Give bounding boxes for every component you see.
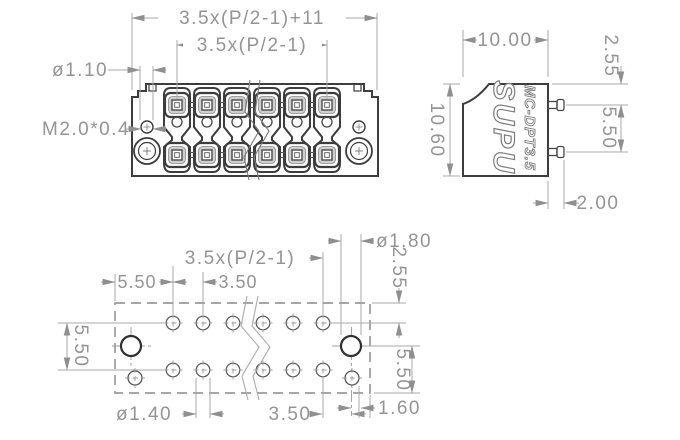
terminal <box>255 93 279 117</box>
break-line <box>241 296 259 400</box>
dim-pitch-bottom: 3.5x(P/2-1) <box>185 248 295 269</box>
terminal <box>285 143 309 167</box>
pin-hole-left <box>141 121 153 133</box>
break-line <box>252 296 270 400</box>
drawing-sheet: 3.5x(P/2-1)+11 3.5x(P/2-1) ø1.10 M2.0*0.… <box>0 0 680 440</box>
terminal <box>315 143 339 167</box>
corner-hole-left <box>125 368 145 388</box>
terminal <box>195 143 219 167</box>
pin-hole <box>194 361 213 380</box>
mount-hole-left <box>121 336 141 356</box>
dim-pin-row-pitch: 5.50 <box>598 107 619 150</box>
terminal <box>165 143 189 167</box>
dim-depth: 10.00 <box>477 30 532 51</box>
dim-overall-width: 3.5x(P/2-1)+11 <box>179 8 325 29</box>
dim-pin-top-offset: 2.55 <box>600 35 621 78</box>
brand-logo-text: SUPU <box>487 80 520 175</box>
dim-hole-pitch: 3.50 <box>218 272 257 292</box>
pin-lower-tip <box>557 147 564 158</box>
pin-hole <box>194 314 213 333</box>
corner-hole-right <box>342 368 362 388</box>
pin-hole <box>314 314 333 333</box>
pin-hole <box>314 361 333 380</box>
dim-mount-to-hole: 3.50 <box>269 404 312 425</box>
model-number-text: MC-DPT3.5 <box>521 85 537 171</box>
pin-hole <box>164 314 183 333</box>
pin-hole <box>284 314 303 333</box>
pin-hole-right <box>353 121 365 133</box>
side-view: SUPU MC-DPT3.5 <box>463 80 564 176</box>
terminal <box>285 93 309 117</box>
dim-row-pitch-left: 5.50 <box>70 325 91 368</box>
dim-pin-length: 2.00 <box>577 193 620 214</box>
mount-hole-left <box>134 138 160 164</box>
dim-height: 10.60 <box>426 102 447 157</box>
dim-pitch-front: 3.5x(P/2-1) <box>197 35 307 56</box>
dim-pin-hole-dia: ø1.10 <box>52 60 108 81</box>
pin-lower <box>548 149 557 156</box>
front-view <box>132 80 378 180</box>
connector-technical-drawing: 3.5x(P/2-1)+11 3.5x(P/2-1) ø1.10 M2.0*0.… <box>0 0 680 440</box>
dim-edge-to-hole: 5.50 <box>117 272 156 292</box>
bottom-view <box>112 296 370 416</box>
pin-hole <box>164 361 183 380</box>
dim-mount-to-edge: 1.60 <box>378 398 421 419</box>
mount-hole-right <box>341 336 361 356</box>
mount-hole-right <box>346 138 372 164</box>
pin-hole <box>224 361 243 380</box>
terminal <box>195 93 219 117</box>
dim-pin-hole-dia-bottom: ø1.40 <box>116 404 172 425</box>
dim-top-edge-offset: 2.55 <box>388 247 409 290</box>
pin-hole <box>254 314 273 333</box>
dim-thread: M2.0*0.4 <box>42 119 130 140</box>
pin-hole <box>284 361 303 380</box>
pin-upper-tip <box>557 100 564 111</box>
pin-hole <box>224 314 243 333</box>
bottom-dimensions: 3.5x(P/2-1) 5.50 3.50 ø1.80 2.55 5.50 5.… <box>58 231 432 425</box>
dim-row-pitch-right: 5.50 <box>392 349 413 392</box>
terminal <box>255 143 279 167</box>
pin-upper <box>548 102 557 109</box>
